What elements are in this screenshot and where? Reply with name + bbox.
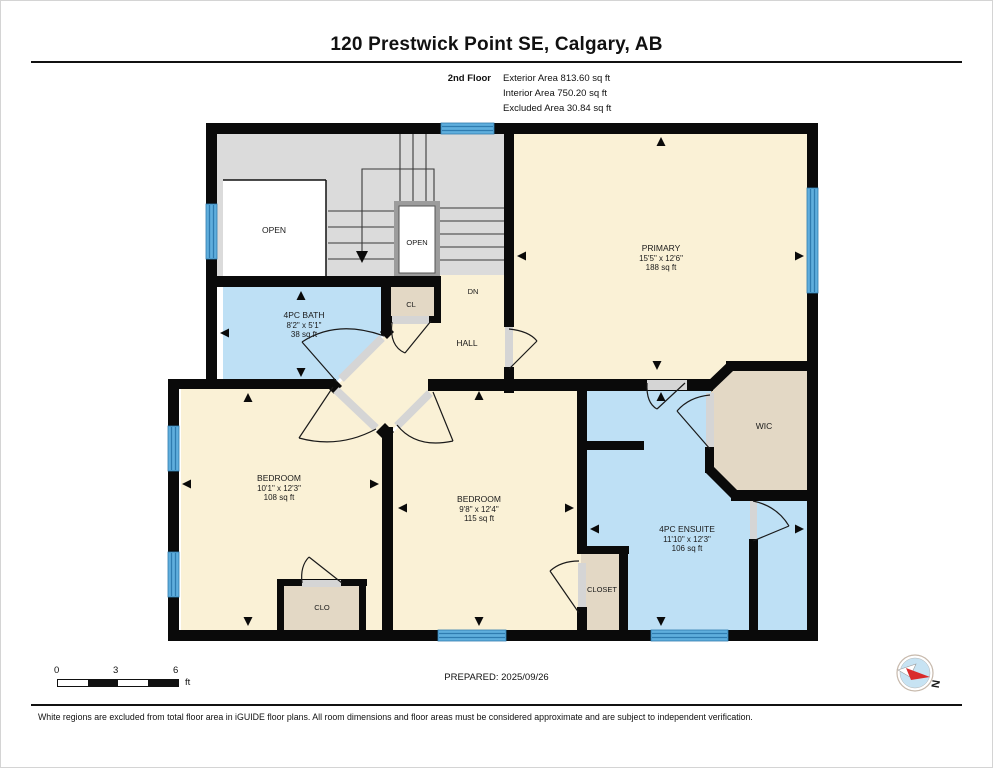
open-stairwell-label: OPEN bbox=[406, 238, 427, 247]
floorplan-page: 120 Prestwick Point SE, Calgary, AB 2nd … bbox=[0, 0, 993, 768]
compass-north-label: N bbox=[928, 679, 941, 689]
wic-label: WIC bbox=[756, 421, 773, 431]
open-left-label: OPEN bbox=[262, 225, 286, 235]
bath-name: 4PC BATH bbox=[284, 310, 325, 320]
prepared-date: PREPARED: 2025/09/26 bbox=[1, 672, 992, 683]
bedroom-left-dims: 10'1" x 12'3" bbox=[257, 484, 301, 493]
compass-icon: N bbox=[889, 649, 949, 705]
floorplan-drawing: OPEN OPEN PRIMARY 15'5" x 12'6" 188 sq f… bbox=[1, 1, 993, 768]
footer-divider bbox=[31, 704, 962, 706]
bath-area: 38 sq ft bbox=[291, 330, 318, 339]
hall-label: HALL bbox=[456, 338, 478, 348]
dn-label: DN bbox=[468, 287, 479, 296]
ensuite-area: 106 sq ft bbox=[672, 544, 703, 553]
bedroom-left-name: BEDROOM bbox=[257, 473, 301, 483]
primary-dims: 15'5" x 12'6" bbox=[639, 254, 683, 263]
clo-label: CLO bbox=[314, 603, 330, 612]
bedroom-middle-area: 115 sq ft bbox=[464, 514, 495, 523]
ensuite-dims: 11'10" x 12'3" bbox=[663, 535, 711, 544]
primary-name: PRIMARY bbox=[642, 243, 681, 253]
room-wic bbox=[711, 369, 809, 495]
primary-area: 188 sq ft bbox=[646, 263, 677, 272]
ensuite-name: 4PC ENSUITE bbox=[659, 524, 715, 534]
closet-label: CLOSET bbox=[587, 585, 617, 594]
bedroom-middle-name: BEDROOM bbox=[457, 494, 501, 504]
bath-dims: 8'2" x 5'1" bbox=[287, 321, 322, 330]
bedroom-middle-dims: 9'8" x 12'4" bbox=[459, 505, 499, 514]
bedroom-left-area: 108 sq ft bbox=[264, 493, 295, 502]
cl-label: CL bbox=[406, 300, 416, 309]
disclaimer-text: White regions are excluded from total fl… bbox=[38, 712, 753, 722]
